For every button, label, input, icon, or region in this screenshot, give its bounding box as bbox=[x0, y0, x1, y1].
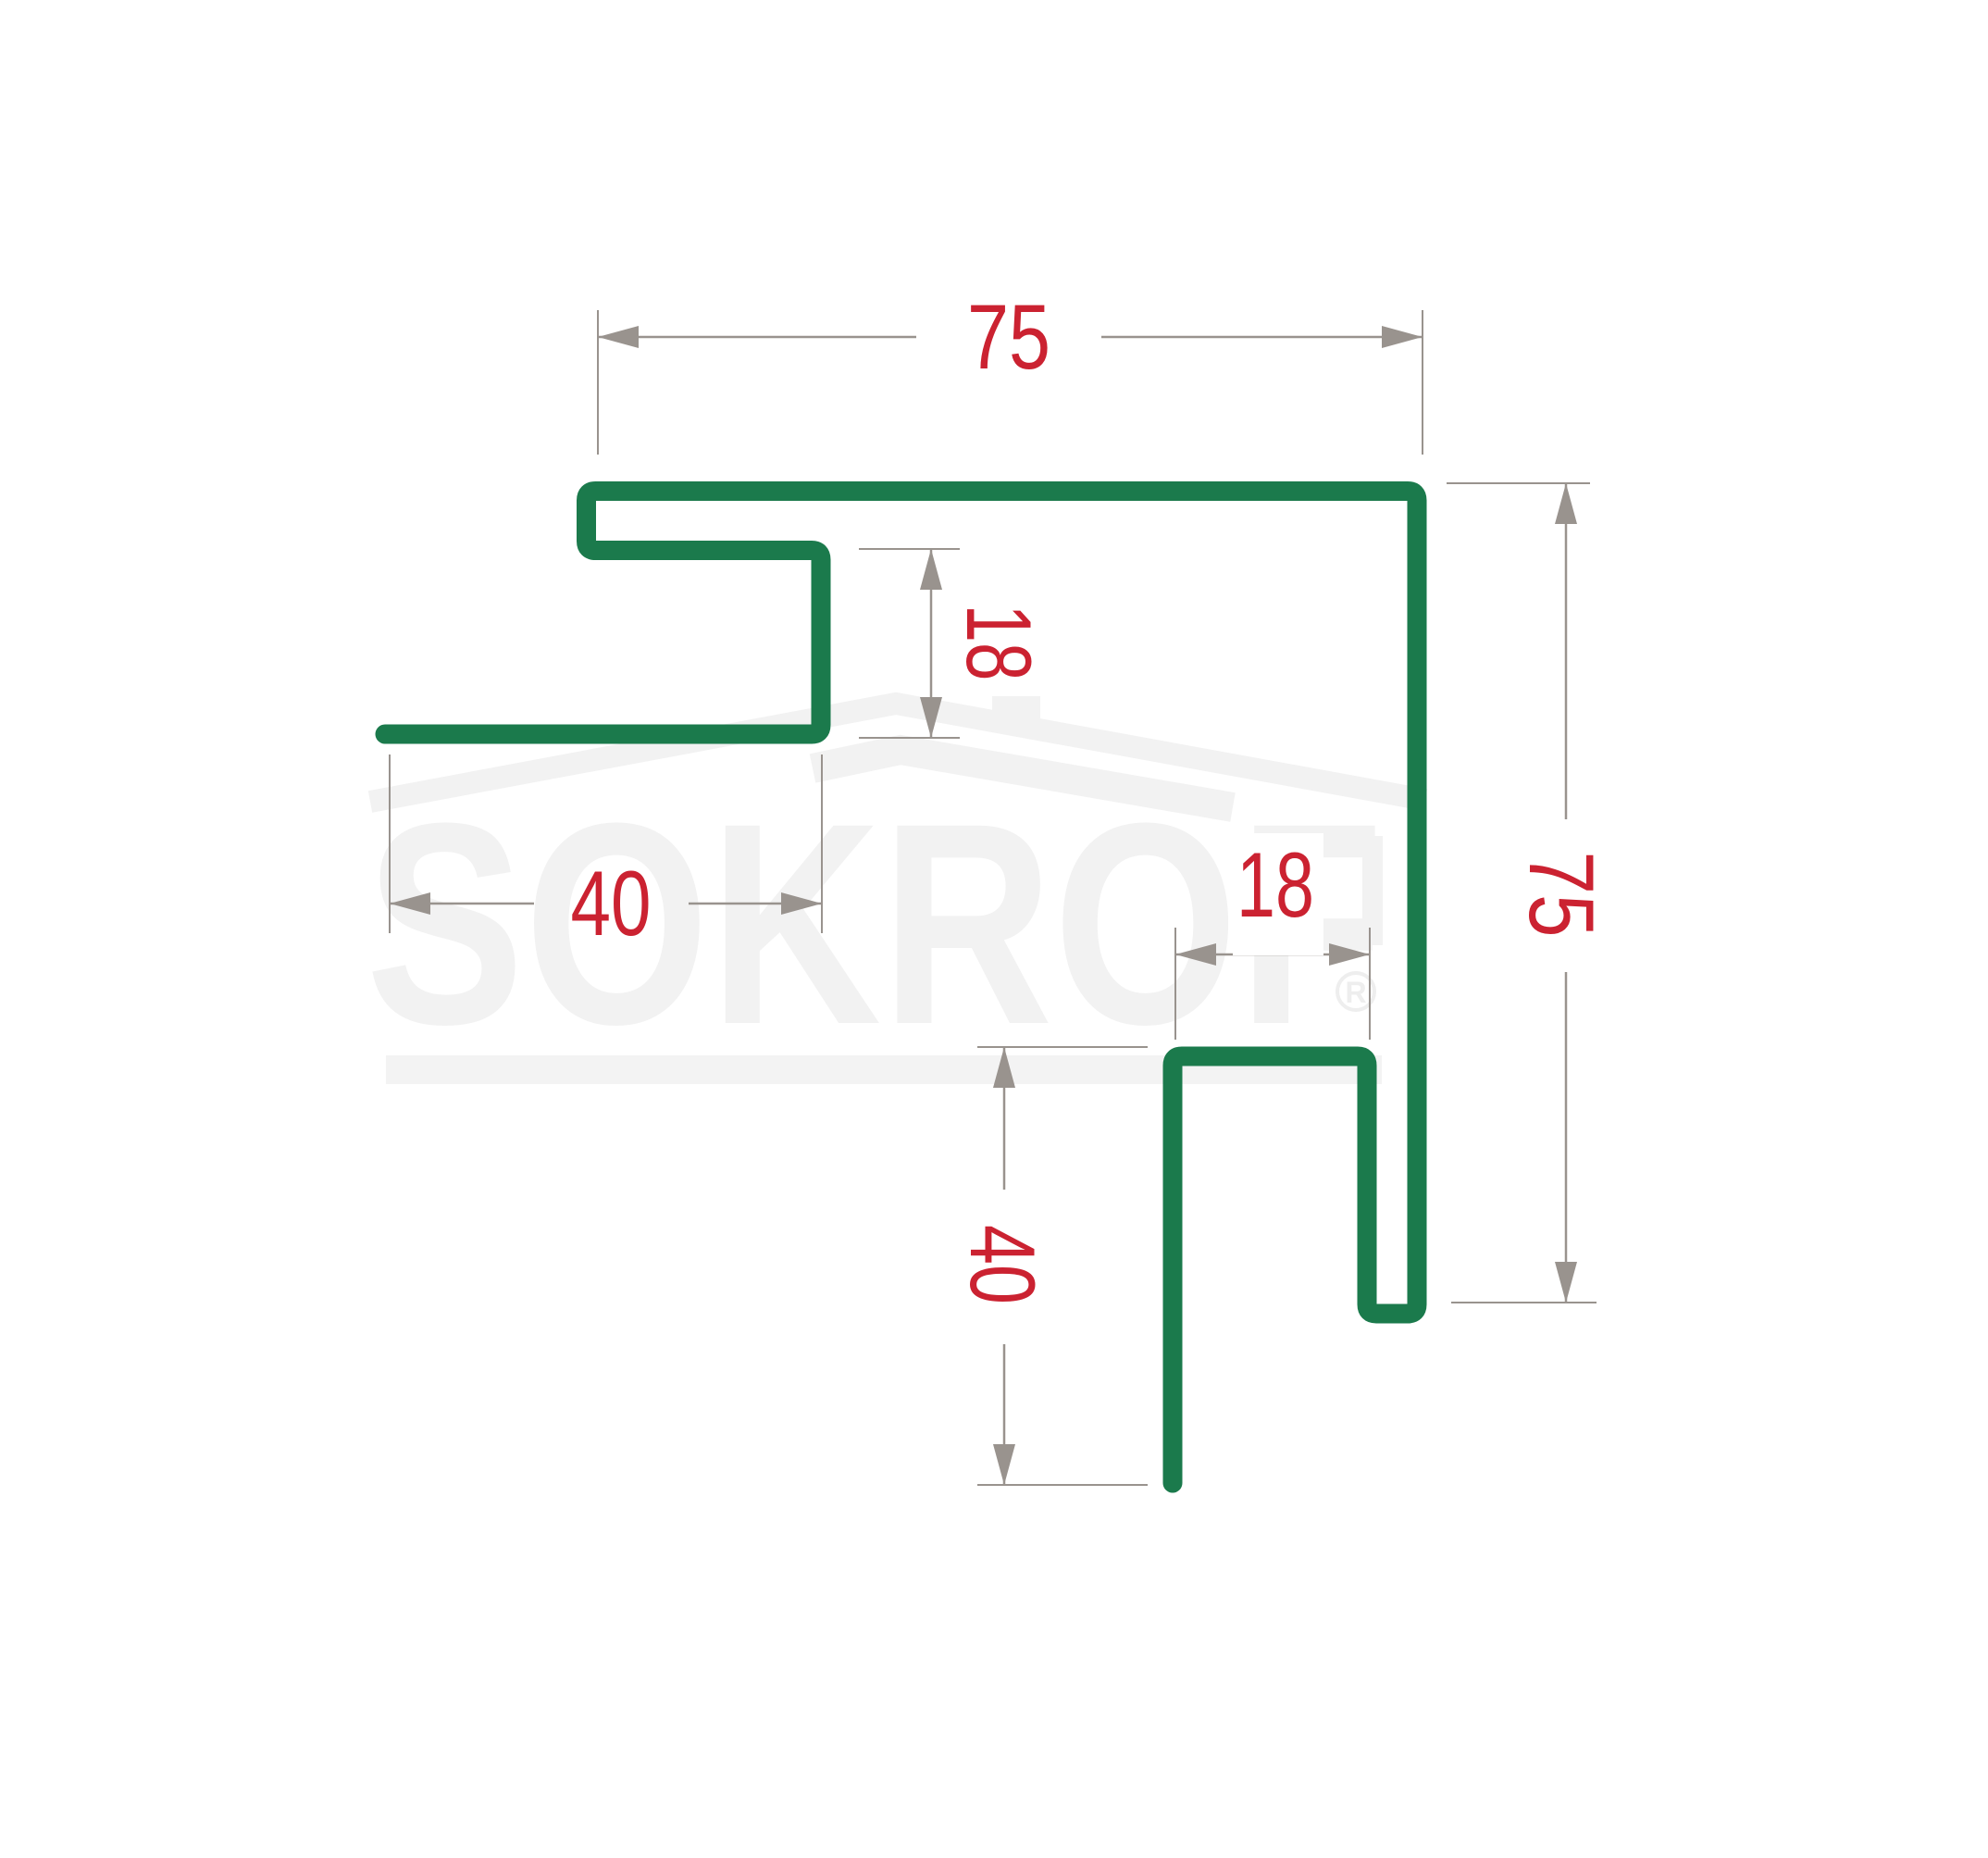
svg-text:R: R bbox=[1345, 976, 1366, 1009]
svg-text:75: 75 bbox=[1510, 852, 1613, 938]
svg-text:18: 18 bbox=[948, 605, 1050, 681]
svg-text:18: 18 bbox=[1236, 833, 1314, 936]
svg-text:SOKROF: SOKROF bbox=[366, 763, 1384, 1084]
svg-text:40: 40 bbox=[571, 852, 652, 954]
svg-text:40: 40 bbox=[951, 1225, 1054, 1304]
svg-text:75: 75 bbox=[967, 285, 1050, 388]
